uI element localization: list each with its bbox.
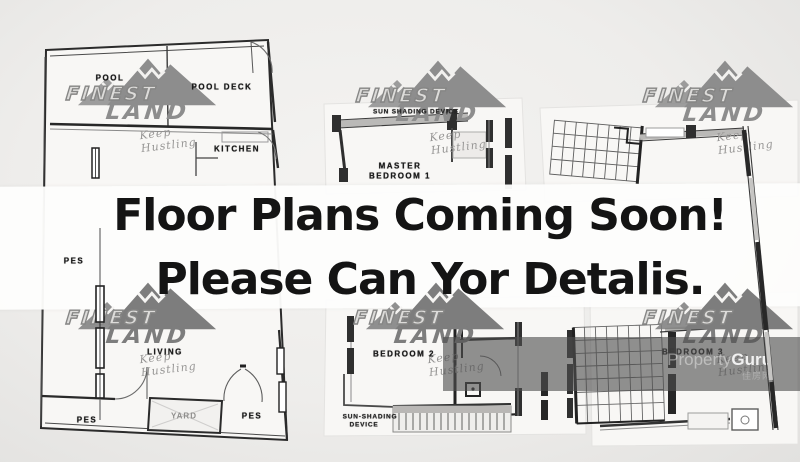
coming-soon-banner xyxy=(0,183,800,310)
floor-plan-image: FINEST LAND Keep Hustling FINEST LAND Ke… xyxy=(0,0,800,462)
propertyguru-logo-bold: Guru xyxy=(731,350,772,369)
middle-top-plan xyxy=(324,98,526,194)
propertyguru-watermark-band: PropertyGuru 佳房网 xyxy=(443,337,800,391)
propertyguru-subtext: 佳房网 xyxy=(667,369,772,382)
propertyguru-logo: PropertyGuru 佳房网 xyxy=(667,350,772,382)
propertyguru-logo-light: Property xyxy=(667,350,731,369)
